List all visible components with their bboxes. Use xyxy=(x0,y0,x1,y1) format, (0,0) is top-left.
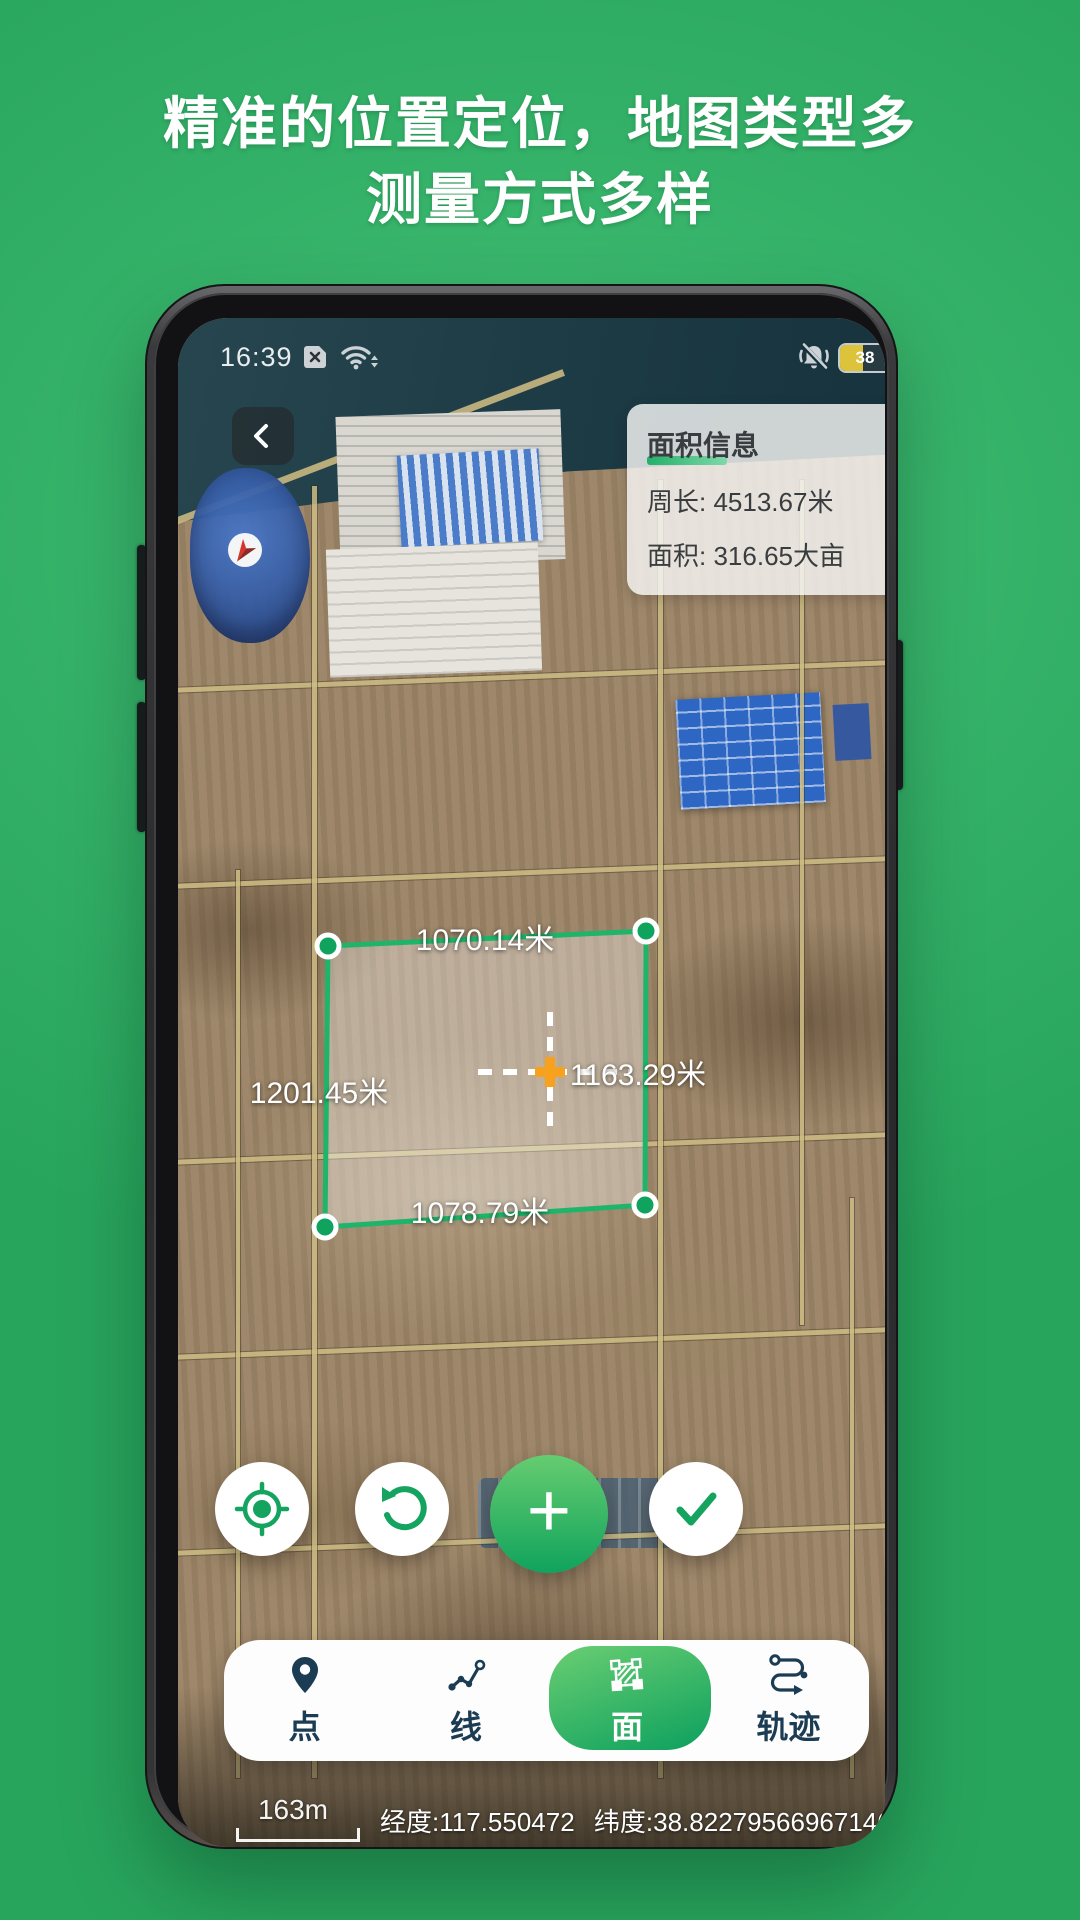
vertex-handle[interactable] xyxy=(635,920,657,942)
hero-title-line1: 精准的位置定位，地图类型多 xyxy=(0,86,1080,162)
longitude-value: 经度:117.550472 xyxy=(380,1807,575,1837)
latitude-value: 纬度:38.822795669671464 xyxy=(594,1807,885,1837)
tab-point-label: 点 xyxy=(289,1702,321,1748)
tab-point[interactable]: 点 xyxy=(224,1640,385,1761)
map-scale-bar xyxy=(236,1828,360,1842)
rotate-ccw-icon xyxy=(374,1481,430,1537)
edge-length-bottom: 1078.79米 xyxy=(411,1188,549,1232)
phone-screen: 1070.14米 1201.45米 1163.29米 1078.79米 16:3… xyxy=(178,318,885,1847)
measure-mode-navbar: 点 线 xyxy=(224,1640,869,1761)
map-scale-label: 163m xyxy=(218,1794,368,1826)
coordinates-readout: 经度:117.550472 纬度:38.822795669671464 xyxy=(374,1802,874,1839)
check-icon xyxy=(668,1481,724,1537)
polygon-icon xyxy=(605,1654,649,1696)
vertex-handle[interactable] xyxy=(314,1216,336,1238)
route-icon xyxy=(766,1654,810,1696)
hero-title-line2: 测量方式多样 xyxy=(0,162,1080,238)
hero-title: 精准的位置定位，地图类型多 测量方式多样 xyxy=(0,86,1080,238)
undo-button[interactable] xyxy=(355,1462,449,1556)
tab-track[interactable]: 轨迹 xyxy=(708,1640,869,1761)
phone-mockup: 1070.14米 1201.45米 1163.29米 1078.79米 16:3… xyxy=(145,284,898,1849)
confirm-button[interactable] xyxy=(649,1462,743,1556)
tab-line-label: 线 xyxy=(450,1702,482,1748)
edge-length-center: 1163.29米 xyxy=(570,1050,706,1094)
tab-track-label: 轨迹 xyxy=(756,1702,820,1748)
phone-bezel: 1070.14米 1201.45米 1163.29米 1078.79米 16:3… xyxy=(154,293,889,1840)
map-pin-icon xyxy=(285,1654,325,1696)
tab-area-label: 面 xyxy=(611,1702,643,1748)
polyline-icon xyxy=(445,1654,487,1696)
gps-target-icon xyxy=(234,1481,290,1537)
edge-length-left: 1201.45米 xyxy=(250,1068,388,1112)
tab-area[interactable]: 面 xyxy=(547,1640,708,1761)
plus-icon: + xyxy=(527,1473,571,1549)
add-point-button[interactable]: + xyxy=(490,1455,608,1573)
locate-button[interactable] xyxy=(215,1462,309,1556)
vertex-handle[interactable] xyxy=(317,935,339,957)
tab-line[interactable]: 线 xyxy=(385,1640,546,1761)
vertex-handle[interactable] xyxy=(634,1194,656,1216)
edge-length-top: 1070.14米 xyxy=(416,915,554,959)
